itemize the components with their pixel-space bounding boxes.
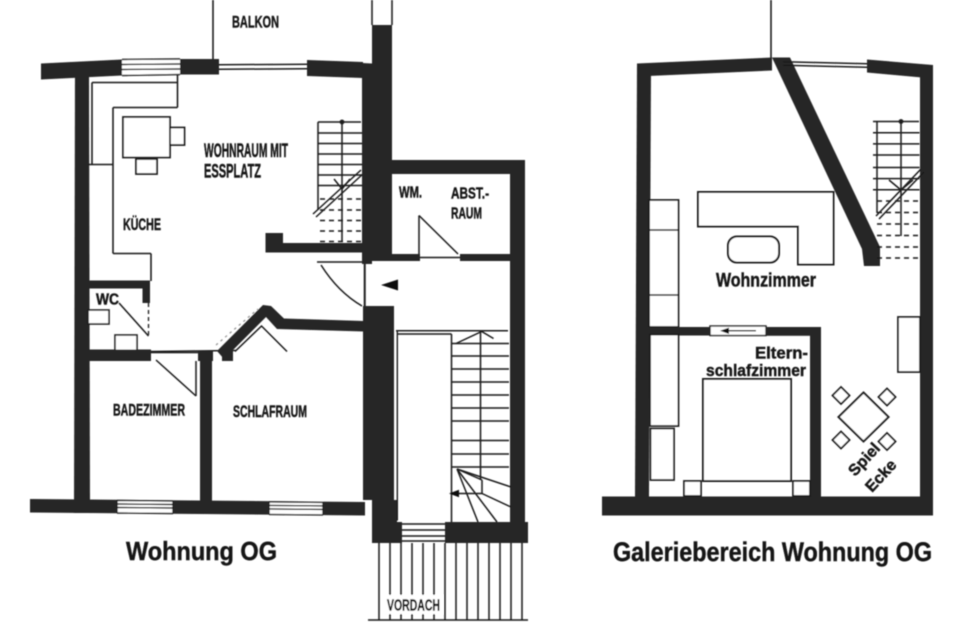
svg-text:schlafzimmer: schlafzimmer <box>706 361 806 380</box>
svg-text:SCHLAFRAUM: SCHLAFRAUM <box>233 403 307 421</box>
svg-text:WOHNRAUM MIT: WOHNRAUM MIT <box>204 141 288 162</box>
svg-text:WM.: WM. <box>399 185 422 202</box>
svg-text:RAUM: RAUM <box>451 206 482 223</box>
svg-text:Wohnung OG: Wohnung OG <box>126 536 277 566</box>
svg-text:Wohnzimmer: Wohnzimmer <box>716 271 817 292</box>
svg-text:KÜCHE: KÜCHE <box>123 215 161 234</box>
svg-text:BADEZIMMER: BADEZIMMER <box>113 402 185 420</box>
svg-text:WC: WC <box>96 292 119 309</box>
svg-text:Galeriebereich Wohnung OG: Galeriebereich Wohnung OG <box>613 537 932 567</box>
svg-text:ESSPLATZ: ESSPLATZ <box>204 162 261 183</box>
svg-text:VORDACH: VORDACH <box>387 598 440 615</box>
svg-text:Eltern-: Eltern- <box>755 344 808 363</box>
svg-text:BALKON: BALKON <box>232 13 279 32</box>
svg-text:ABST.-: ABST.- <box>451 186 489 203</box>
